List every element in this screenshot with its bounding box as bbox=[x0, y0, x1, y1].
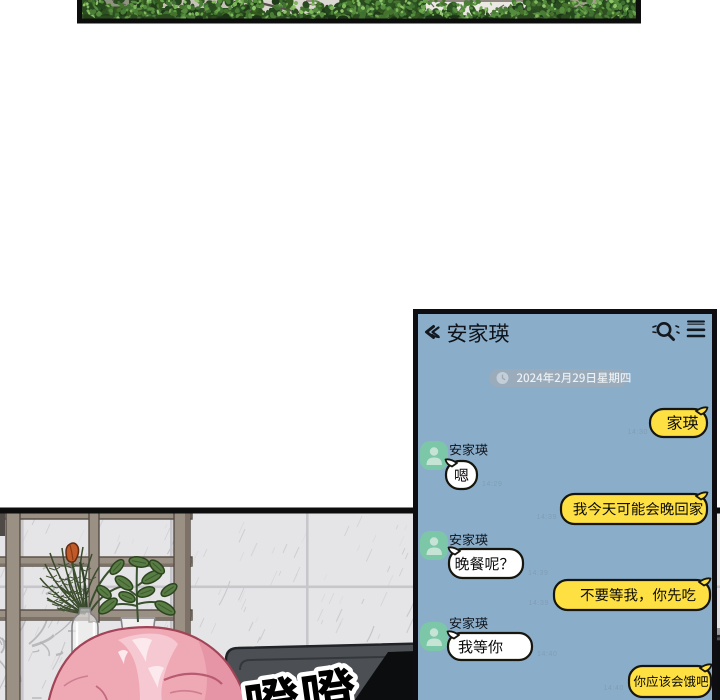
svg-text:14:39: 14:39 bbox=[528, 570, 549, 577]
svg-text:14:30: 14:30 bbox=[627, 429, 648, 436]
svg-text:14:39: 14:39 bbox=[528, 600, 549, 607]
svg-text:14:29: 14:29 bbox=[482, 481, 503, 488]
svg-text:14:40: 14:40 bbox=[603, 685, 624, 692]
svg-text:14:39: 14:39 bbox=[536, 514, 557, 521]
svg-text:14:40: 14:40 bbox=[537, 651, 558, 658]
